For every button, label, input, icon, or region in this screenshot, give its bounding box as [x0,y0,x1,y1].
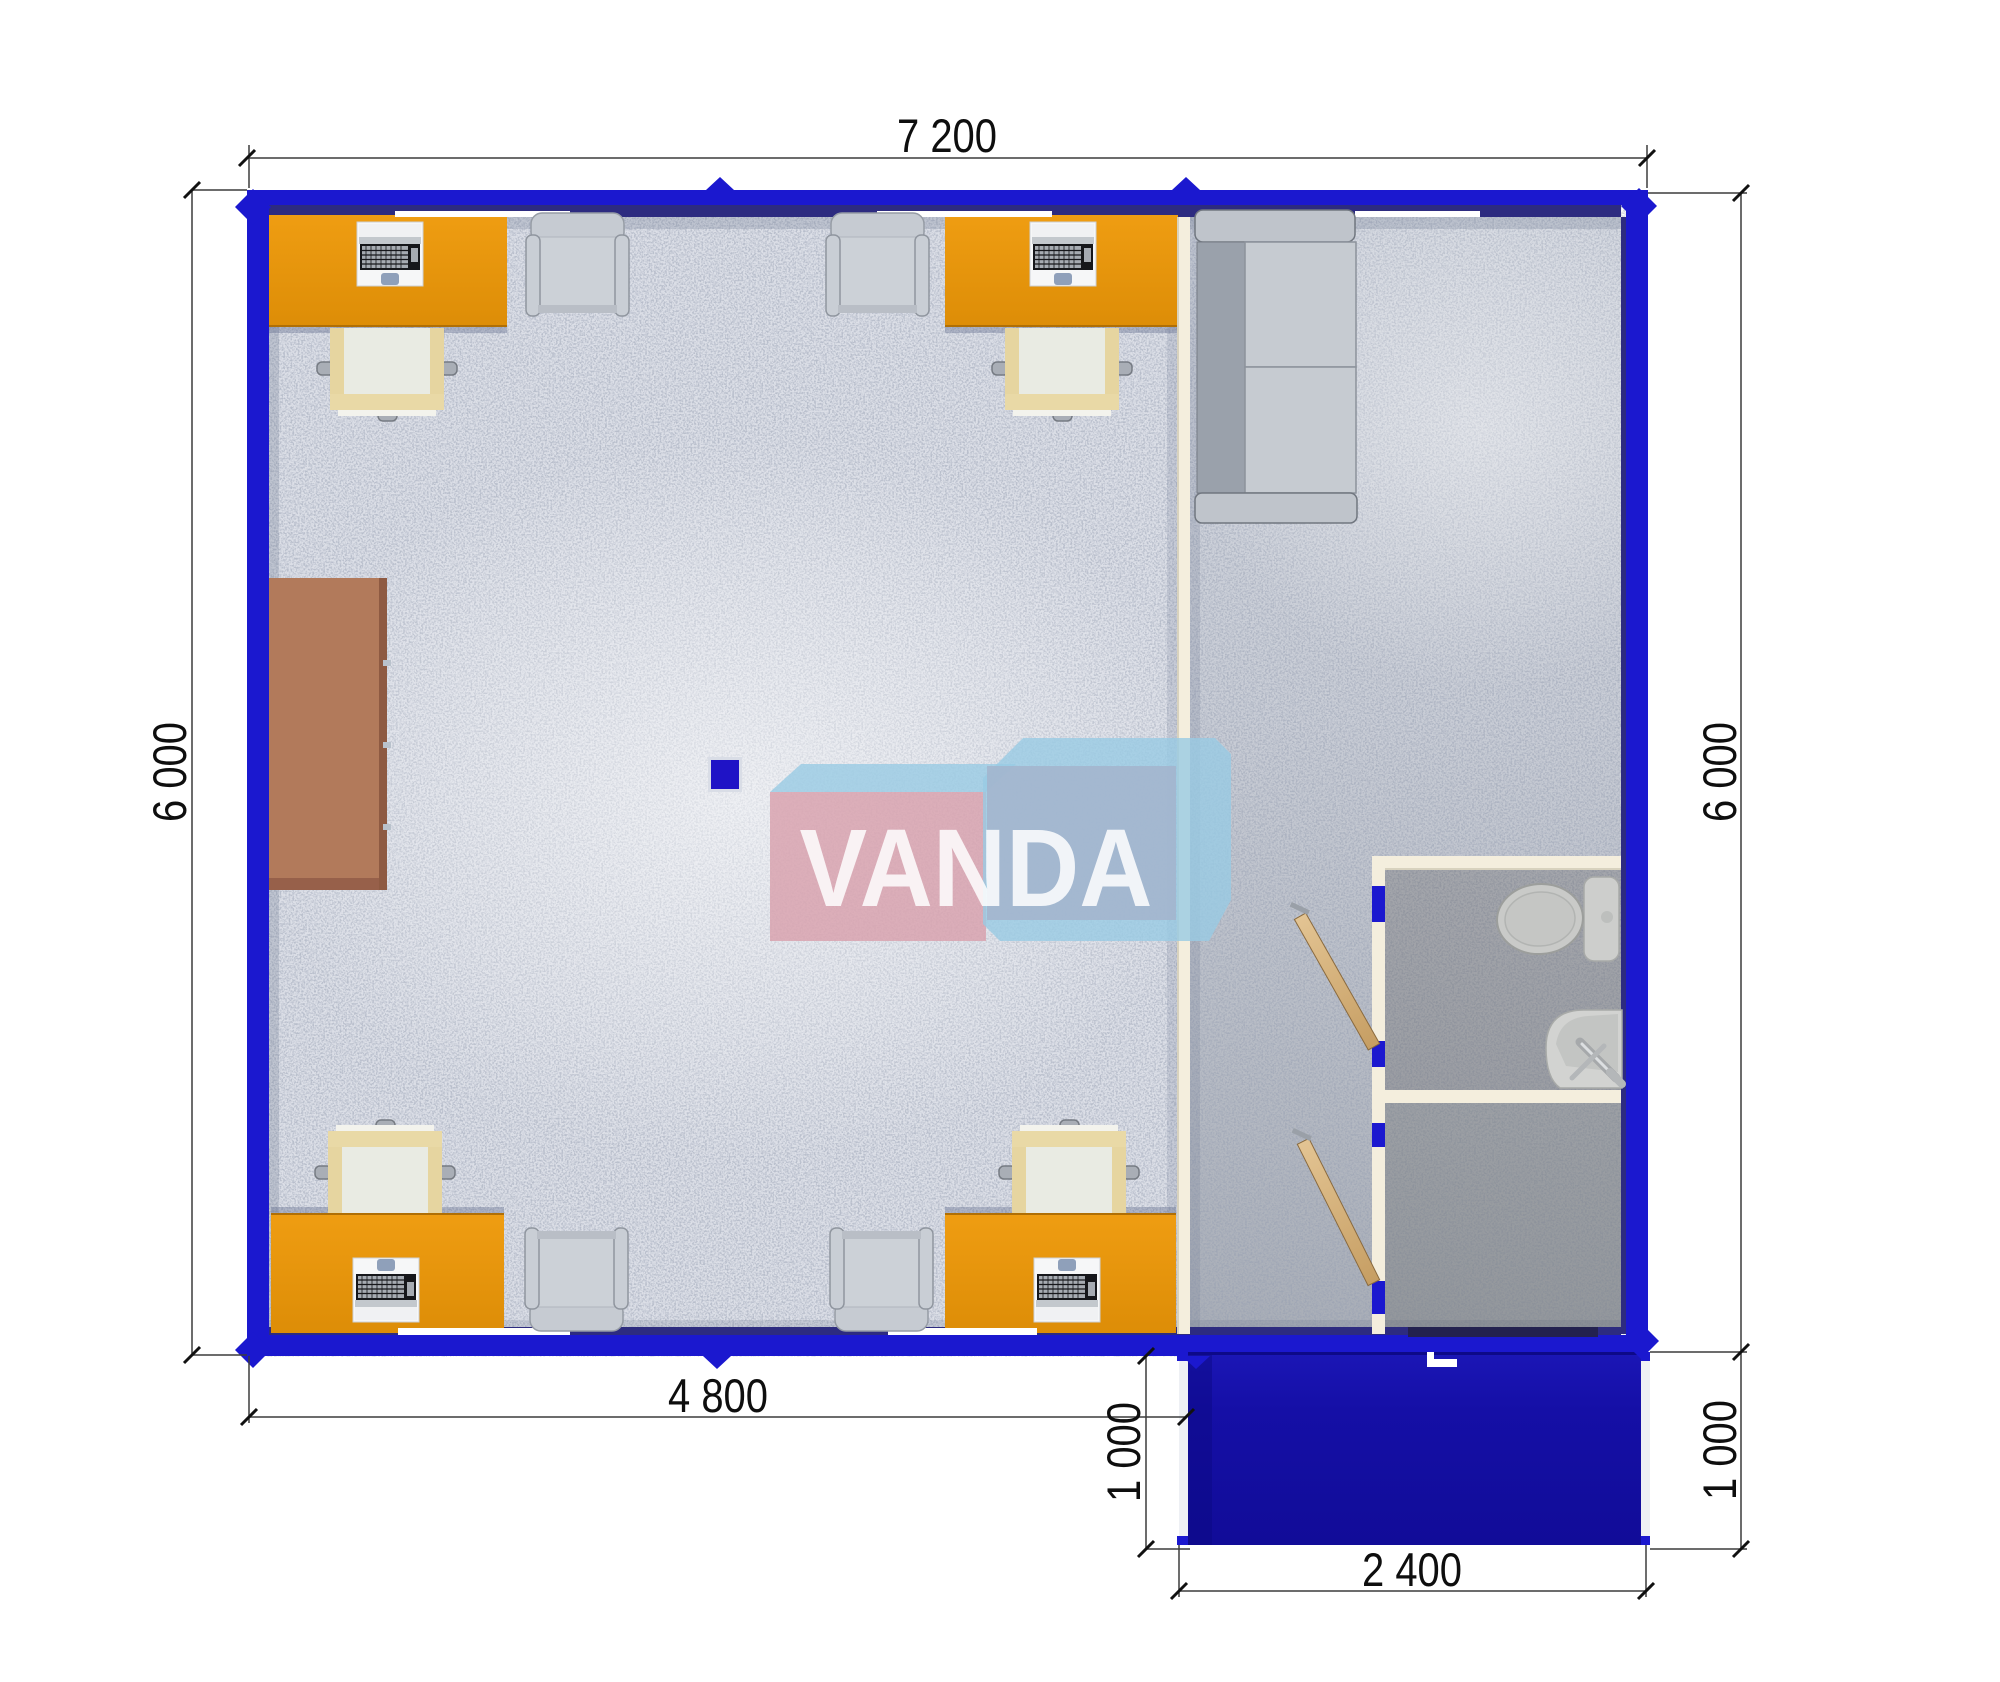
svg-text:2 400: 2 400 [1362,1543,1462,1596]
svg-text:6 000: 6 000 [143,722,196,822]
svg-text:1 000: 1 000 [1693,1400,1746,1500]
svg-text:6 000: 6 000 [1693,722,1746,822]
svg-text:4 800: 4 800 [668,1369,768,1422]
svg-text:VANDA: VANDA [800,807,1153,930]
svg-text:1 000: 1 000 [1097,1402,1150,1502]
svg-text:7 200: 7 200 [897,109,997,162]
